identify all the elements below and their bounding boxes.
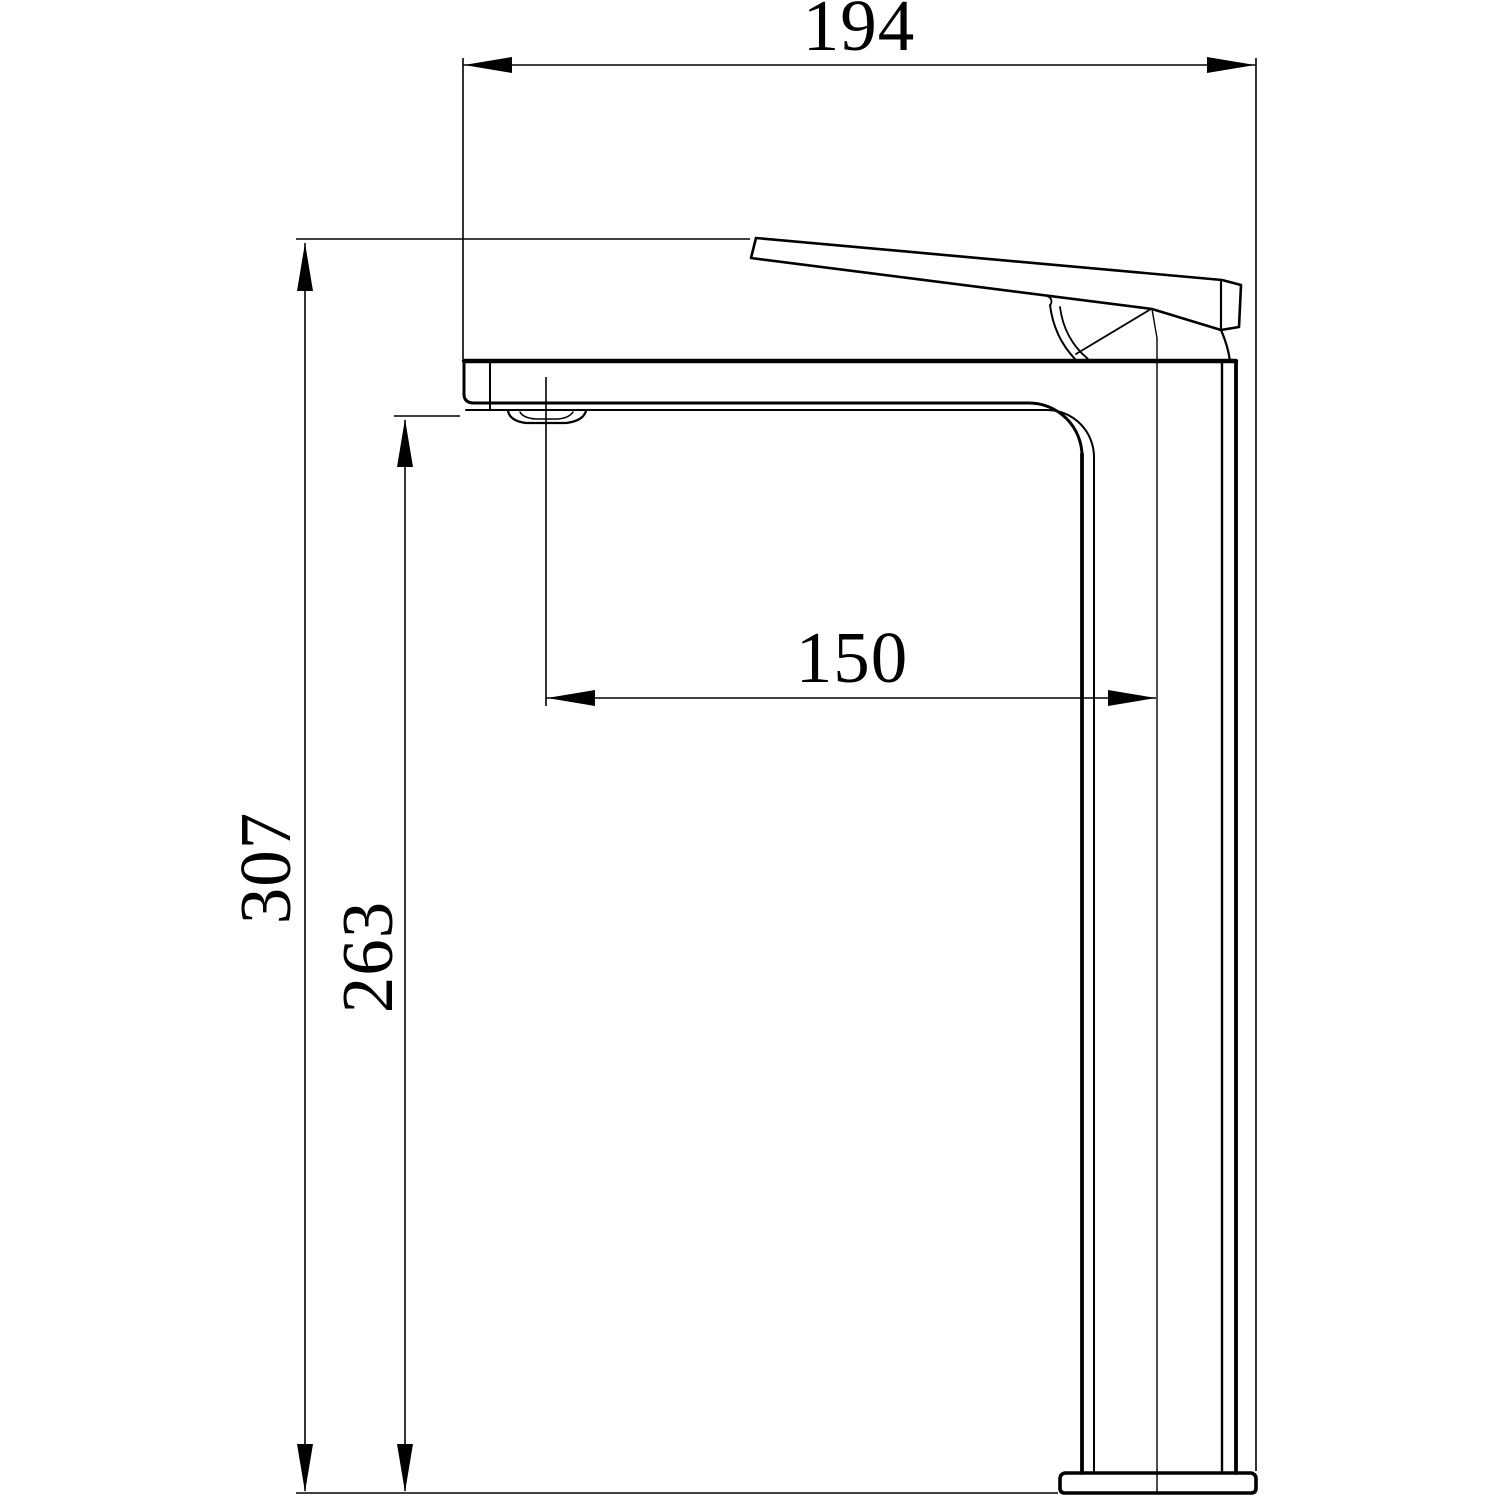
drawing-background	[0, 0, 1497, 1496]
faucet-technical-drawing: 194 307 263 150	[0, 0, 1497, 1496]
dimension-label-outlet-height: 263	[327, 901, 408, 1014]
dimension-label-overall-height: 307	[225, 812, 306, 925]
dimension-label-overall-width: 194	[803, 0, 916, 66]
dimension-label-spout-reach: 150	[796, 617, 909, 698]
drawing-canvas: 194 307 263 150	[0, 0, 1497, 1496]
